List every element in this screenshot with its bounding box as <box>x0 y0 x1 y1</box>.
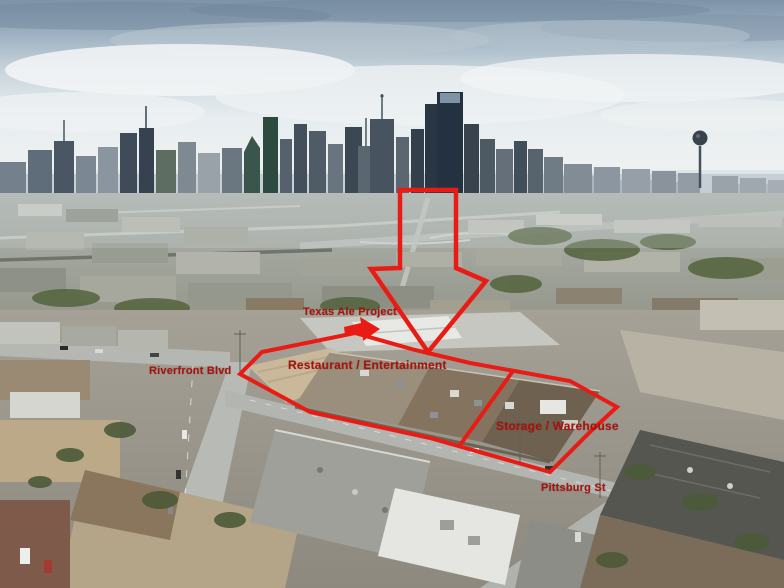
roof-skylight <box>540 400 566 414</box>
annotation-label-texas-ale-project: Texas Ale Project <box>303 306 397 318</box>
annotation-label-pittsburg-st: Pittsburg St <box>541 482 606 494</box>
bank-of-america-tower <box>263 117 278 195</box>
annotation-label-storage-warehouse: Storage / Warehouse <box>496 419 619 433</box>
annotation-label-riverfront-blvd: Riverfront Blvd <box>149 365 231 377</box>
white-vehicle <box>20 548 30 564</box>
renaissance-tower <box>370 119 394 195</box>
annotation-label-restaurant-entertainment: Restaurant / Entertainment <box>288 358 447 372</box>
comerica-tower <box>437 92 463 195</box>
clouds <box>0 0 784 132</box>
aerial-photo-canvas <box>0 0 784 588</box>
annotated-aerial-photo: Texas Ale Project Restaurant / Entertain… <box>0 0 784 588</box>
red-vehicle <box>44 560 52 573</box>
